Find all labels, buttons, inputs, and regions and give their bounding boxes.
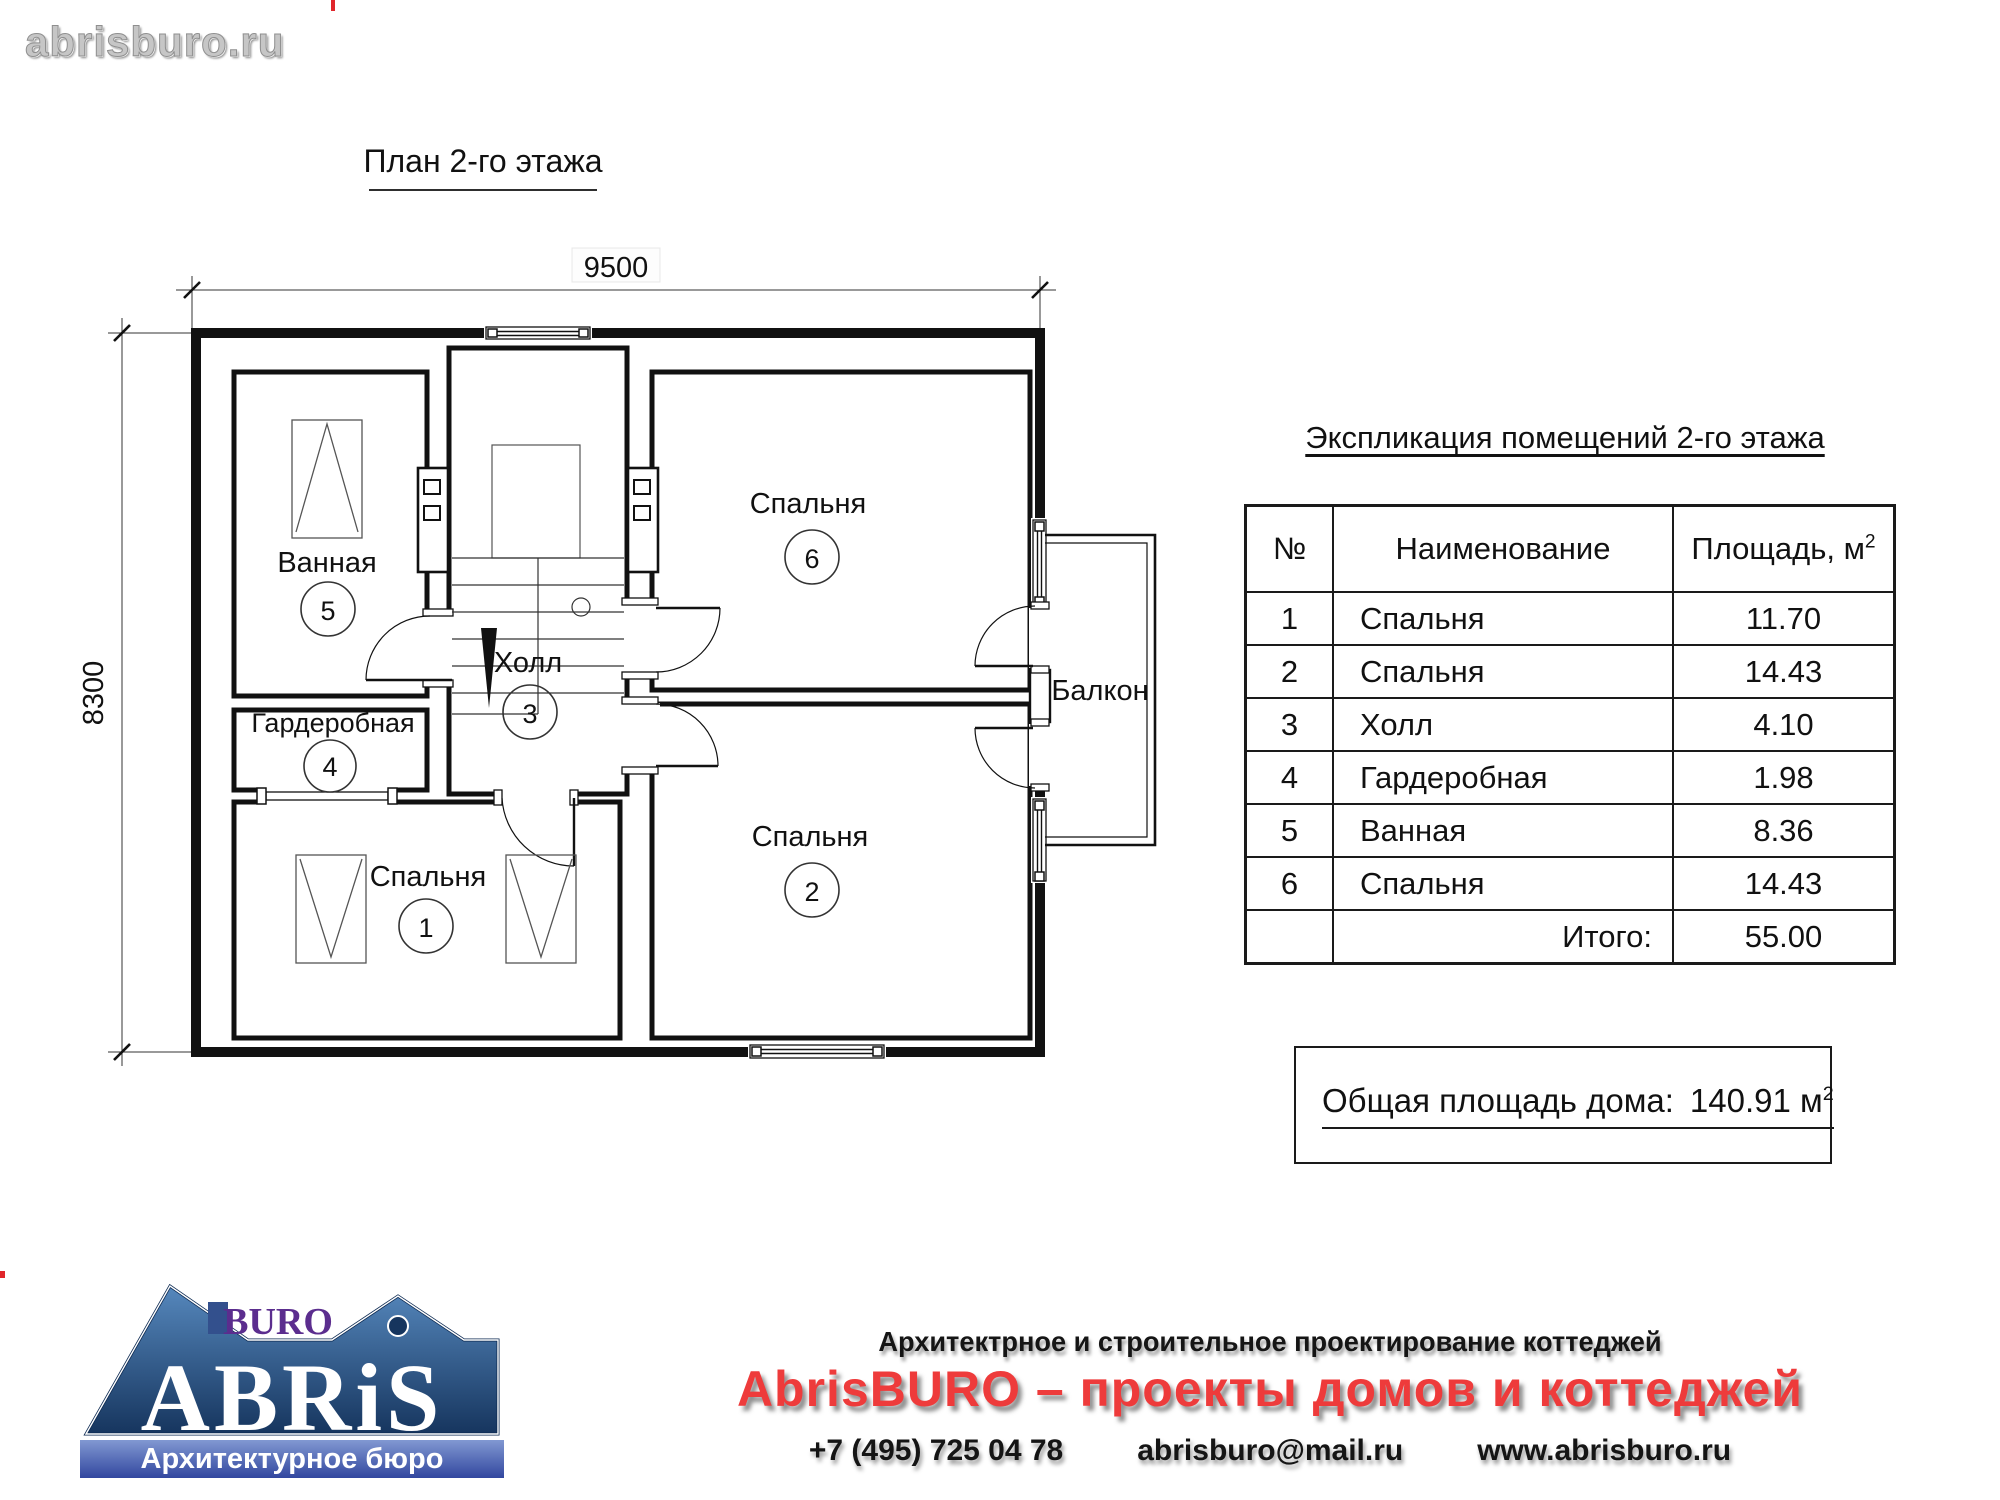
legend-title: Экспликация помещений 2-го этажа bbox=[1244, 420, 1886, 456]
dim-height-label: 8300 bbox=[78, 661, 110, 726]
red-marker-left bbox=[0, 1271, 5, 1278]
label-bedroom6: Спальня bbox=[750, 488, 867, 520]
label-bedroom2: Спальня bbox=[752, 821, 869, 853]
window-right-lower bbox=[1033, 799, 1046, 881]
legend-row: 2Спальня14.43 bbox=[1246, 645, 1895, 698]
room-legend-table: № Наименование Площадь, м2 1Спальня11.70… bbox=[1244, 504, 1896, 965]
legend-total-row: Итого:55.00 bbox=[1246, 910, 1895, 964]
legend-row: 1Спальня11.70 bbox=[1246, 592, 1895, 645]
legend-col-area-text: Площадь, м bbox=[1691, 531, 1864, 566]
window-bottom bbox=[750, 1045, 884, 1058]
legend-row: 4Гардеробная1.98 bbox=[1246, 751, 1895, 804]
label-wardrobe: Гардеробная bbox=[251, 708, 414, 738]
footer-contacts: +7 (495) 725 04 78 abrisburo@mail.ru www… bbox=[560, 1434, 1980, 1468]
dim-width-label: 9500 bbox=[584, 252, 649, 284]
window-top bbox=[486, 327, 590, 339]
stair-railing-posts bbox=[418, 468, 658, 572]
total-area-box: Общая площадь дома:140.91 м2 bbox=[1294, 1046, 1832, 1164]
site-watermark: abrisburo.ru bbox=[25, 18, 284, 66]
abris-logo: BURO ABRiS Архитектурное бюро bbox=[80, 1282, 504, 1478]
legend-col-num: № bbox=[1246, 506, 1334, 593]
plan-title: План 2-го этажа bbox=[363, 143, 602, 190]
label-hall: Холл bbox=[494, 647, 562, 679]
total-area-unit: м bbox=[1800, 1082, 1823, 1119]
total-area-unit-sup: 2 bbox=[1823, 1083, 1834, 1105]
room-bedroom2-outline bbox=[652, 704, 1030, 1038]
legend-row: 3Холл4.10 bbox=[1246, 698, 1895, 751]
num-bathroom: 5 bbox=[320, 596, 335, 626]
legend-col-area: Площадь, м2 bbox=[1673, 506, 1895, 593]
total-area-text: Общая площадь дома:140.91 м2 bbox=[1322, 1082, 1834, 1129]
num-bedroom2: 2 bbox=[804, 877, 819, 907]
balcony: Балкон bbox=[1045, 535, 1155, 845]
num-bedroom6: 6 bbox=[804, 544, 819, 574]
total-area-value: 140.91 bbox=[1690, 1082, 1791, 1119]
footer-phone: +7 (495) 725 04 78 bbox=[809, 1434, 1063, 1468]
logo-i-dot bbox=[388, 1316, 408, 1336]
interior-walls bbox=[234, 348, 1030, 1038]
num-wardrobe: 4 bbox=[322, 752, 337, 782]
footer-email: abrisburo@mail.ru bbox=[1137, 1434, 1403, 1468]
footer-tagline: Архитектрное и строительное проектирован… bbox=[581, 1326, 1958, 1358]
window-right-upper bbox=[1033, 520, 1046, 606]
num-hall: 3 bbox=[522, 699, 537, 729]
footer-site: www.abrisburo.ru bbox=[1477, 1434, 1731, 1468]
logo-abris-text: ABRiS bbox=[141, 1344, 444, 1451]
page: abrisburo.ru План 2-го этажа 9500 8300 bbox=[0, 0, 2000, 1500]
wardrobe-cabinet-1 bbox=[296, 855, 366, 963]
plan-title-text: План 2-го этажа bbox=[363, 143, 602, 179]
logo-buro-text: BURO bbox=[223, 1301, 333, 1343]
total-area-label: Общая площадь дома: bbox=[1322, 1082, 1674, 1119]
wall-openings bbox=[260, 325, 1051, 1061]
footer-headline: AbrisBURO – проекты домов и коттеджей bbox=[560, 1360, 1980, 1418]
label-bathroom: Ванная bbox=[277, 547, 376, 579]
bathroom-window-fixture bbox=[292, 420, 362, 538]
floor-plan-drawing: План 2-го этажа 9500 8300 bbox=[60, 130, 1200, 1090]
num-bedroom1: 1 bbox=[418, 913, 433, 943]
legend-col-area-sup: 2 bbox=[1865, 532, 1876, 553]
room-bedroom6-outline bbox=[652, 372, 1030, 690]
legend-header-row: № Наименование Площадь, м2 bbox=[1246, 506, 1895, 593]
balcony-door-pier bbox=[1030, 670, 1050, 722]
legend-row: 5Ванная8.36 bbox=[1246, 804, 1895, 857]
wardrobe-cabinet-2 bbox=[506, 855, 576, 963]
label-bedroom1: Спальня bbox=[370, 861, 487, 893]
balcony-label: Балкон bbox=[1051, 675, 1148, 707]
red-marker-top bbox=[331, 0, 335, 11]
logo-band-text: Архитектурное бюро bbox=[141, 1443, 444, 1475]
legend-col-name: Наименование bbox=[1333, 506, 1673, 593]
legend-row: 6Спальня14.43 bbox=[1246, 857, 1895, 910]
